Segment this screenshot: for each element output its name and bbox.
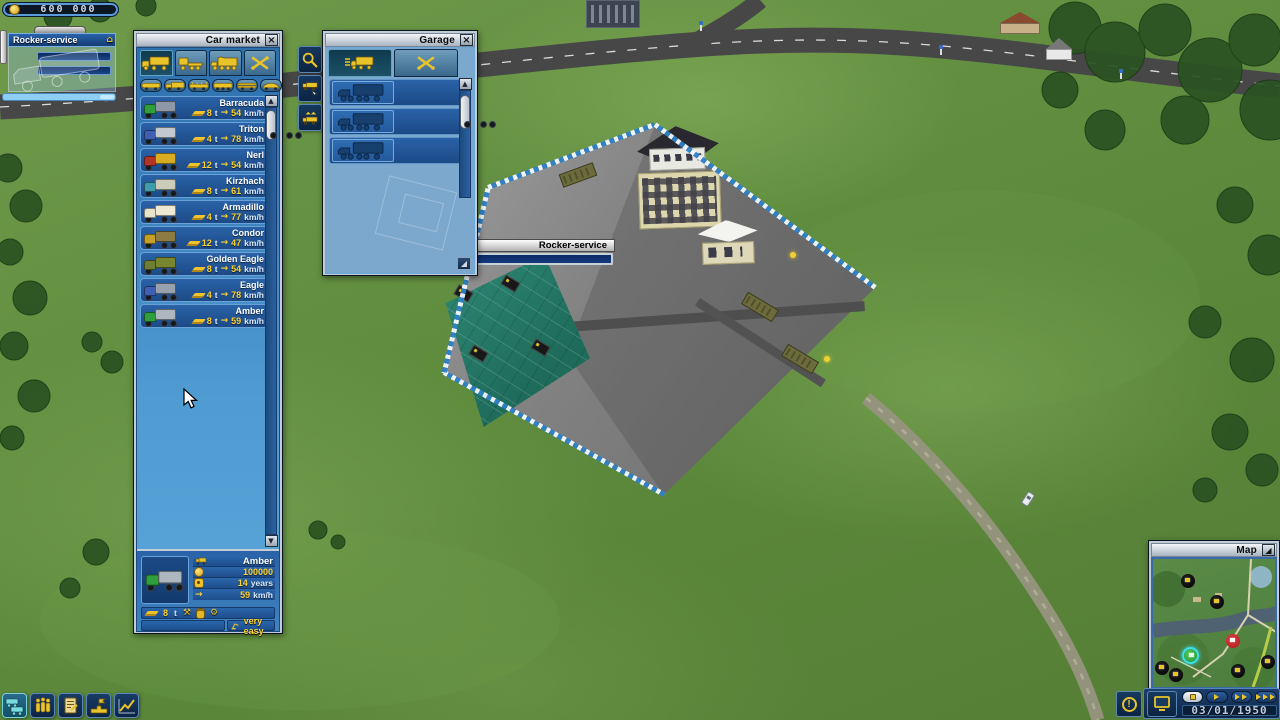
resize-grip[interactable]: ◢ — [457, 257, 471, 270]
vehicle-panel-title: Rocker-service — [13, 35, 78, 45]
capacity-unit: t — [215, 135, 218, 144]
garage-slot[interactable] — [329, 108, 463, 135]
fastest-icon — [1270, 694, 1278, 700]
tab-tools[interactable] — [244, 50, 277, 76]
filter-timber-truck[interactable] — [236, 79, 258, 92]
truck-name: Condor — [179, 229, 264, 238]
truck-name: Eagle — [179, 281, 264, 290]
truck-box — [155, 231, 176, 242]
garage-scrollbar: ▲ — [458, 78, 472, 198]
speed-arrow-icon: → — [221, 187, 229, 195]
warning-light — [790, 252, 796, 258]
selected-age: 14 — [238, 578, 248, 588]
truck-box — [155, 127, 176, 138]
truck-list-item[interactable]: Armadillo 4t→77km/h — [140, 200, 268, 224]
building-tooltip-title: Rocker-service — [539, 240, 607, 251]
map-title: Map — [1236, 545, 1257, 556]
speed-value: 59 — [231, 317, 241, 326]
garage-truck-silhouette — [332, 81, 394, 104]
cargo-icon — [186, 241, 201, 246]
truck-list-item[interactable]: Nerl 12t→54km/h — [140, 148, 268, 172]
vehicle-panel-body — [8, 47, 116, 92]
detail-footer-segment — [141, 620, 225, 631]
scroll-down-button[interactable]: ▼ — [265, 535, 278, 547]
detail-row-speed: → 59km/h — [193, 589, 275, 600]
garage-slot[interactable] — [329, 137, 463, 164]
truck-name: Kirzhach — [179, 177, 264, 186]
capacity-value: 4 — [207, 213, 212, 222]
car-market-titlebar[interactable]: Car market × — [136, 33, 280, 47]
speed-buttons — [1182, 691, 1277, 704]
truck-thumbnail — [142, 254, 179, 275]
truck-stats: 8t→61km/h — [179, 187, 264, 196]
selected-truck-thumbnail — [141, 556, 189, 604]
map-collapse-button[interactable]: ◢ — [1262, 544, 1275, 556]
map-marker[interactable] — [1155, 661, 1169, 675]
speed-value: 54 — [231, 161, 241, 170]
garage-side-buttons — [298, 46, 322, 133]
toolbar-vehicles-button[interactable] — [2, 693, 27, 718]
play-icon — [1214, 694, 1222, 700]
warning-light — [824, 356, 830, 362]
locate-building-icon[interactable]: ⌂ — [107, 35, 113, 45]
truck-stats: 4t→78km/h — [179, 135, 264, 144]
speed-arrow-icon: → — [221, 239, 229, 247]
road-sign — [700, 24, 702, 31]
car-market-title: Car market — [206, 35, 260, 46]
minimap-terrain — [1153, 559, 1277, 687]
speed-pause-button[interactable] — [1182, 691, 1203, 703]
selected-price: 100000 — [243, 567, 273, 577]
truck-name: Armadillo — [179, 203, 264, 212]
top-edge-building — [586, 0, 640, 28]
difficulty-row: very easy — [227, 620, 275, 631]
garage-slot[interactable] — [329, 79, 463, 106]
detail-row-price: 100000 — [193, 567, 275, 578]
truck-stats: 8t→59km/h — [179, 317, 264, 326]
building-status-bar — [476, 253, 613, 265]
speed-value: 54 — [231, 265, 241, 274]
cargo-icon — [191, 189, 206, 194]
capacity-value: 4 — [207, 135, 212, 144]
map-marker[interactable] — [1261, 655, 1275, 669]
speed-value: 77 — [231, 213, 241, 222]
filter-long-tanker[interactable] — [212, 79, 234, 92]
selected-age-unit: years — [251, 578, 273, 588]
speed-fastest-button[interactable] — [1255, 691, 1277, 703]
truck-thumbnail — [142, 98, 179, 119]
garage-tabs — [328, 49, 458, 77]
capacity-unit: t — [215, 213, 218, 222]
truck-list-item[interactable]: Triton 4t→78km/h — [140, 122, 268, 146]
truck-name: Amber — [179, 307, 264, 316]
truck-box — [155, 309, 176, 320]
speed-value: 61 — [231, 187, 241, 196]
small-building — [697, 219, 759, 267]
fast-icon — [1242, 694, 1250, 700]
scroll-up-button[interactable]: ▲ — [459, 78, 472, 90]
speed-value: 78 — [231, 291, 241, 300]
speed-arrow-icon: → — [221, 317, 229, 325]
truck-list-item[interactable]: Kirzhach 8t→61km/h — [140, 174, 268, 198]
capacity-value: 4 — [207, 291, 212, 300]
truck-name: Barracuda — [179, 99, 264, 108]
selected-truck-details: Amber 100000 14years → 59km/h 8 t — [137, 549, 279, 631]
speed-arrow-icon: → — [221, 265, 229, 273]
screen-mode-button[interactable] — [1147, 691, 1177, 717]
money-display: 600 000 — [2, 2, 119, 17]
truck-box — [155, 179, 176, 190]
speed-arrow-icon: → — [221, 291, 229, 299]
cargo-icon — [191, 267, 206, 272]
tools-icon: ⚒ — [183, 609, 191, 618]
capacity-unit: t — [215, 265, 218, 274]
truck-ghost-icon — [8, 40, 109, 97]
capacity-value: 12 — [202, 239, 212, 248]
capacity-value: 8 — [207, 265, 212, 274]
speed-unit: km/h — [244, 187, 264, 196]
truck-list-item[interactable]: Barracuda 8t→54km/h — [140, 96, 268, 120]
truck-list-item[interactable]: Eagle 4t→78km/h — [140, 278, 268, 302]
minimap[interactable] — [1151, 557, 1277, 689]
alert-button[interactable]: ! — [1116, 691, 1142, 717]
truck-thumbnail — [142, 228, 179, 249]
fuel-can-icon — [197, 609, 204, 618]
truck-thumbnail — [142, 280, 179, 301]
crane-icon — [231, 621, 240, 631]
tab-garage-repair[interactable] — [394, 49, 458, 77]
cargo-icon — [191, 215, 206, 220]
map-marker-alert[interactable] — [1226, 634, 1240, 648]
truck-box — [155, 283, 176, 294]
scroll-up-button[interactable]: ▲ — [265, 95, 278, 107]
speed-unit: km/h — [244, 135, 264, 144]
speed-arrow-icon: → — [221, 135, 229, 143]
time-control-panel: 03/01/1950 — [1143, 688, 1280, 719]
speed-fast-button[interactable] — [1231, 691, 1252, 703]
garage-title: Garage — [419, 35, 455, 46]
age-clock-icon — [195, 579, 203, 587]
map-marker[interactable] — [1231, 664, 1245, 678]
main-toolbar — [2, 693, 139, 718]
garage-truck-silhouette — [332, 139, 394, 162]
car-market-filters — [138, 78, 278, 94]
truck-mini-icon — [195, 557, 207, 565]
difficulty-value: very easy — [244, 616, 271, 636]
truck-name: Triton — [179, 125, 264, 134]
map-marker[interactable] — [1210, 595, 1224, 609]
speed-normal-button[interactable] — [1206, 691, 1227, 703]
capacity-unit: t — [215, 291, 218, 300]
cargo-icon — [191, 111, 206, 116]
scrollbar-track[interactable] — [265, 107, 277, 535]
garage-titlebar[interactable]: Garage × — [325, 33, 475, 47]
truck-list-scrollbar: ▲ ▼ — [264, 95, 278, 547]
map-titlebar[interactable]: Map ◢ — [1151, 543, 1277, 557]
garage-window: Garage × ▲ — [322, 30, 478, 276]
alert-icon: ! — [1122, 697, 1137, 712]
filter-tanker-truck[interactable] — [140, 79, 162, 92]
truck-thumbnail — [142, 306, 179, 327]
detail-row-name: Amber — [193, 556, 275, 567]
selected-speed: 59 — [240, 590, 250, 600]
cargo-icon — [186, 163, 201, 168]
speed-unit: km/h — [244, 161, 264, 170]
find-vehicle-button[interactable] — [298, 46, 322, 73]
selected-name: Amber — [243, 556, 273, 567]
truck-thumbnail — [142, 124, 179, 145]
capacity-value: 8 — [207, 317, 212, 326]
panel-scroll-strip[interactable] — [2, 93, 116, 101]
road-sign — [940, 48, 942, 55]
speed-arrow-icon: → — [221, 109, 229, 117]
speed-unit: km/h — [244, 213, 264, 222]
cargo-icon — [191, 293, 206, 298]
road-sign — [1120, 72, 1122, 79]
car-market-tabs — [138, 49, 278, 77]
scrollbar-track[interactable] — [459, 90, 471, 198]
map-marker-selected[interactable] — [1182, 647, 1199, 664]
price-coin-icon — [195, 568, 203, 576]
cargo-icon — [144, 611, 159, 616]
selected-capacity: 8 — [163, 608, 168, 618]
selected-capacity-unit: t — [174, 608, 177, 618]
tab-tractor-trucks[interactable] — [175, 50, 208, 76]
dirt-path — [866, 398, 1098, 720]
tab-box-trucks[interactable] — [140, 50, 173, 76]
tab-covered-trucks[interactable] — [209, 50, 242, 76]
truck-stats: 4t→77km/h — [179, 213, 264, 222]
truck-stats: 8t→54km/h — [179, 265, 264, 274]
speed-arrow-icon: → — [221, 161, 229, 169]
garage-truck-silhouette — [332, 110, 394, 133]
truck-stats: 4t→78km/h — [179, 291, 264, 300]
building-tooltip: Rocker-service — [474, 239, 615, 265]
truck-stats: 8t→54km/h — [179, 109, 264, 118]
capacity-unit: t — [215, 161, 218, 170]
truck-stats: 12t→54km/h — [179, 161, 264, 170]
gear-icon: ⚙ — [210, 609, 218, 618]
capacity-unit: t — [215, 317, 218, 326]
truck-stats: 12t→47km/h — [179, 239, 264, 248]
truck-name: Nerl — [179, 151, 264, 160]
coin-icon — [10, 5, 19, 14]
toolbar-staff-button[interactable] — [30, 693, 55, 718]
speed-value: 78 — [231, 135, 241, 144]
capacity-unit: t — [215, 187, 218, 196]
cargo-icon — [191, 319, 206, 324]
cargo-icon — [191, 137, 206, 142]
scrollbar-thumb[interactable] — [460, 95, 470, 129]
toolbar-contracts-button[interactable] — [58, 693, 83, 718]
capacity-value: 12 — [202, 161, 212, 170]
map-marker[interactable] — [1169, 668, 1183, 682]
capacity-value: 8 — [207, 109, 212, 118]
speed-unit: km/h — [244, 291, 264, 300]
capacity-unit: t — [215, 239, 218, 248]
map-window: Map ◢ — [1148, 540, 1280, 690]
car-market-window: Car market × — [133, 30, 283, 634]
house — [1000, 12, 1040, 34]
money-amount: 600 000 — [19, 4, 118, 15]
filter-stake-truck[interactable] — [188, 79, 210, 92]
date-display: 03/01/1950 — [1182, 705, 1277, 716]
truck-box — [155, 101, 176, 112]
toolbar-company-button[interactable] — [86, 693, 111, 718]
truck-thumbnail — [142, 202, 179, 223]
truck-list-item[interactable]: Condor 12t→47km/h — [140, 226, 268, 250]
garage-close-button[interactable]: × — [460, 34, 473, 46]
truck-box — [155, 153, 176, 164]
scrollbar-thumb[interactable] — [266, 110, 276, 140]
map-marker[interactable] — [1181, 574, 1195, 588]
speed-arrow-icon: → — [195, 591, 203, 599]
speed-value: 54 — [231, 109, 241, 118]
truck-list-item[interactable]: Golden Eagle 8t→54km/h — [140, 252, 268, 276]
truck-thumbnail — [142, 150, 179, 171]
capacity-value: 8 — [207, 187, 212, 196]
pause-icon — [1190, 694, 1196, 700]
truck-list: Barracuda 8t→54km/h Triton 4t→78km/h Ner… — [138, 95, 270, 547]
truck-name: Golden Eagle — [179, 255, 264, 264]
speed-value: 47 — [231, 239, 241, 248]
car-market-close-button[interactable]: × — [265, 34, 278, 46]
truck-list-item[interactable]: Amber 8t→59km/h — [140, 304, 268, 328]
take-vehicle-button[interactable] — [298, 75, 322, 102]
speed-unit: km/h — [244, 239, 264, 248]
tab-garage-vehicles[interactable] — [328, 49, 392, 77]
panel-side-handle[interactable] — [0, 30, 7, 64]
small-house — [1046, 38, 1072, 60]
capacity-unit: t — [215, 109, 218, 118]
truck-thumbnail — [142, 176, 179, 197]
speed-arrow-icon: → — [221, 213, 229, 221]
selected-speed-unit: km/h — [253, 590, 273, 600]
speed-unit: km/h — [244, 265, 264, 274]
filter-car[interactable] — [260, 79, 282, 92]
speed-unit: km/h — [244, 109, 264, 118]
truck-box — [155, 257, 176, 268]
sell-vehicle-button[interactable] — [298, 104, 322, 131]
truck-box — [155, 205, 176, 216]
filter-box-truck[interactable] — [164, 79, 186, 92]
detail-row-age: 14years — [193, 578, 275, 589]
toolbar-statistics-button[interactable] — [114, 693, 139, 718]
speed-unit: km/h — [244, 317, 264, 326]
